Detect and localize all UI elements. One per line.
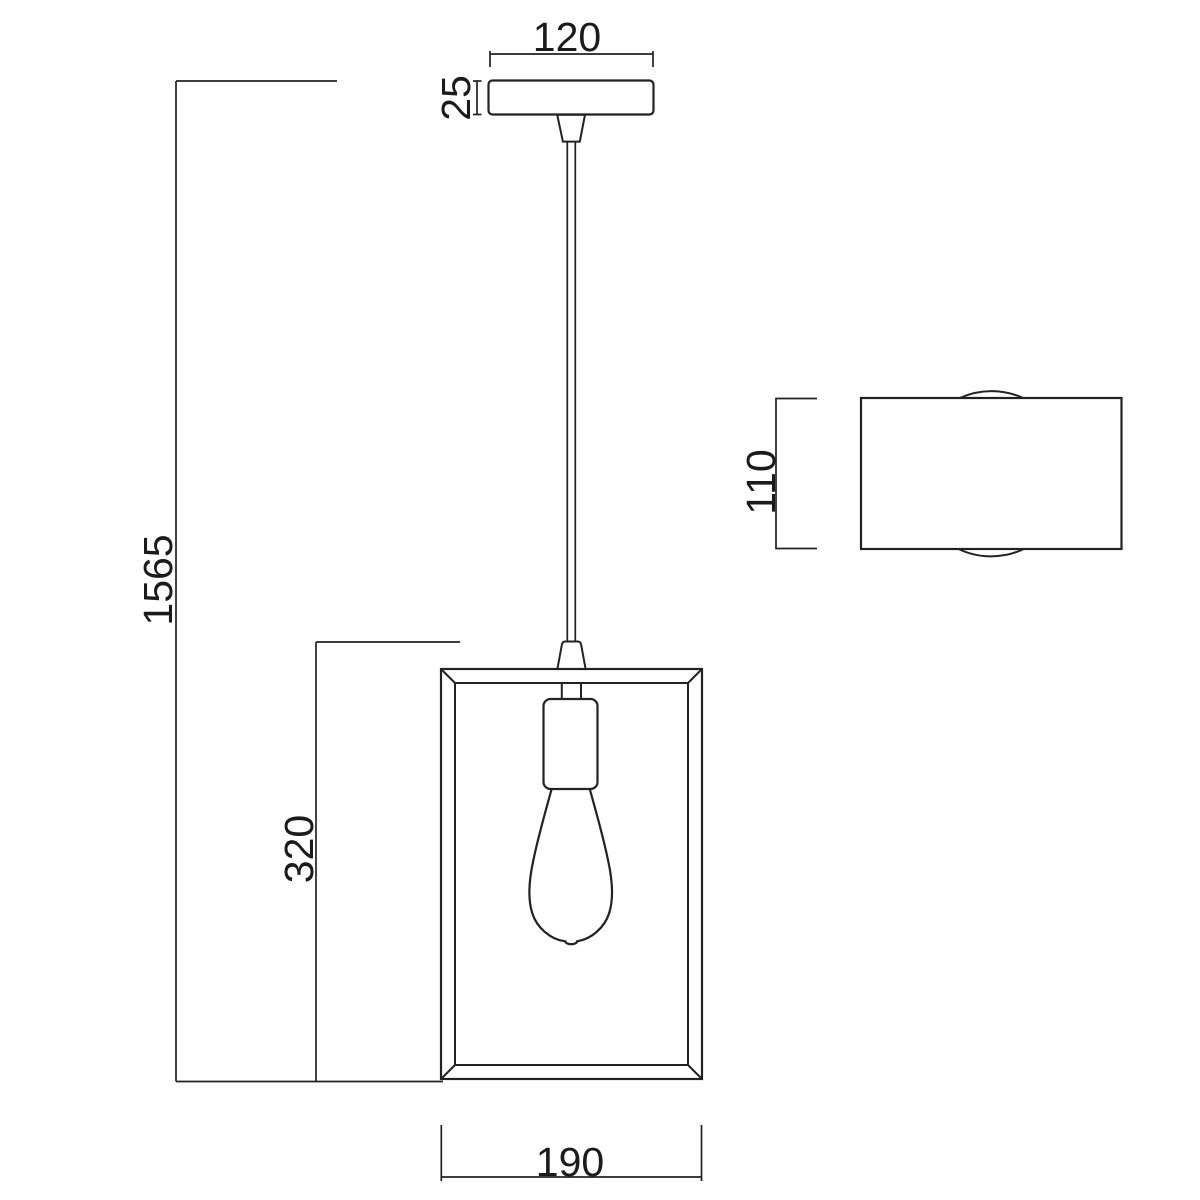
svg-text:120: 120 [533,14,601,60]
svg-text:110: 110 [738,449,784,514]
svg-text:1565: 1565 [135,534,181,625]
svg-text:190: 190 [536,1139,604,1185]
svg-text:25: 25 [433,75,479,121]
svg-text:320: 320 [276,815,322,883]
